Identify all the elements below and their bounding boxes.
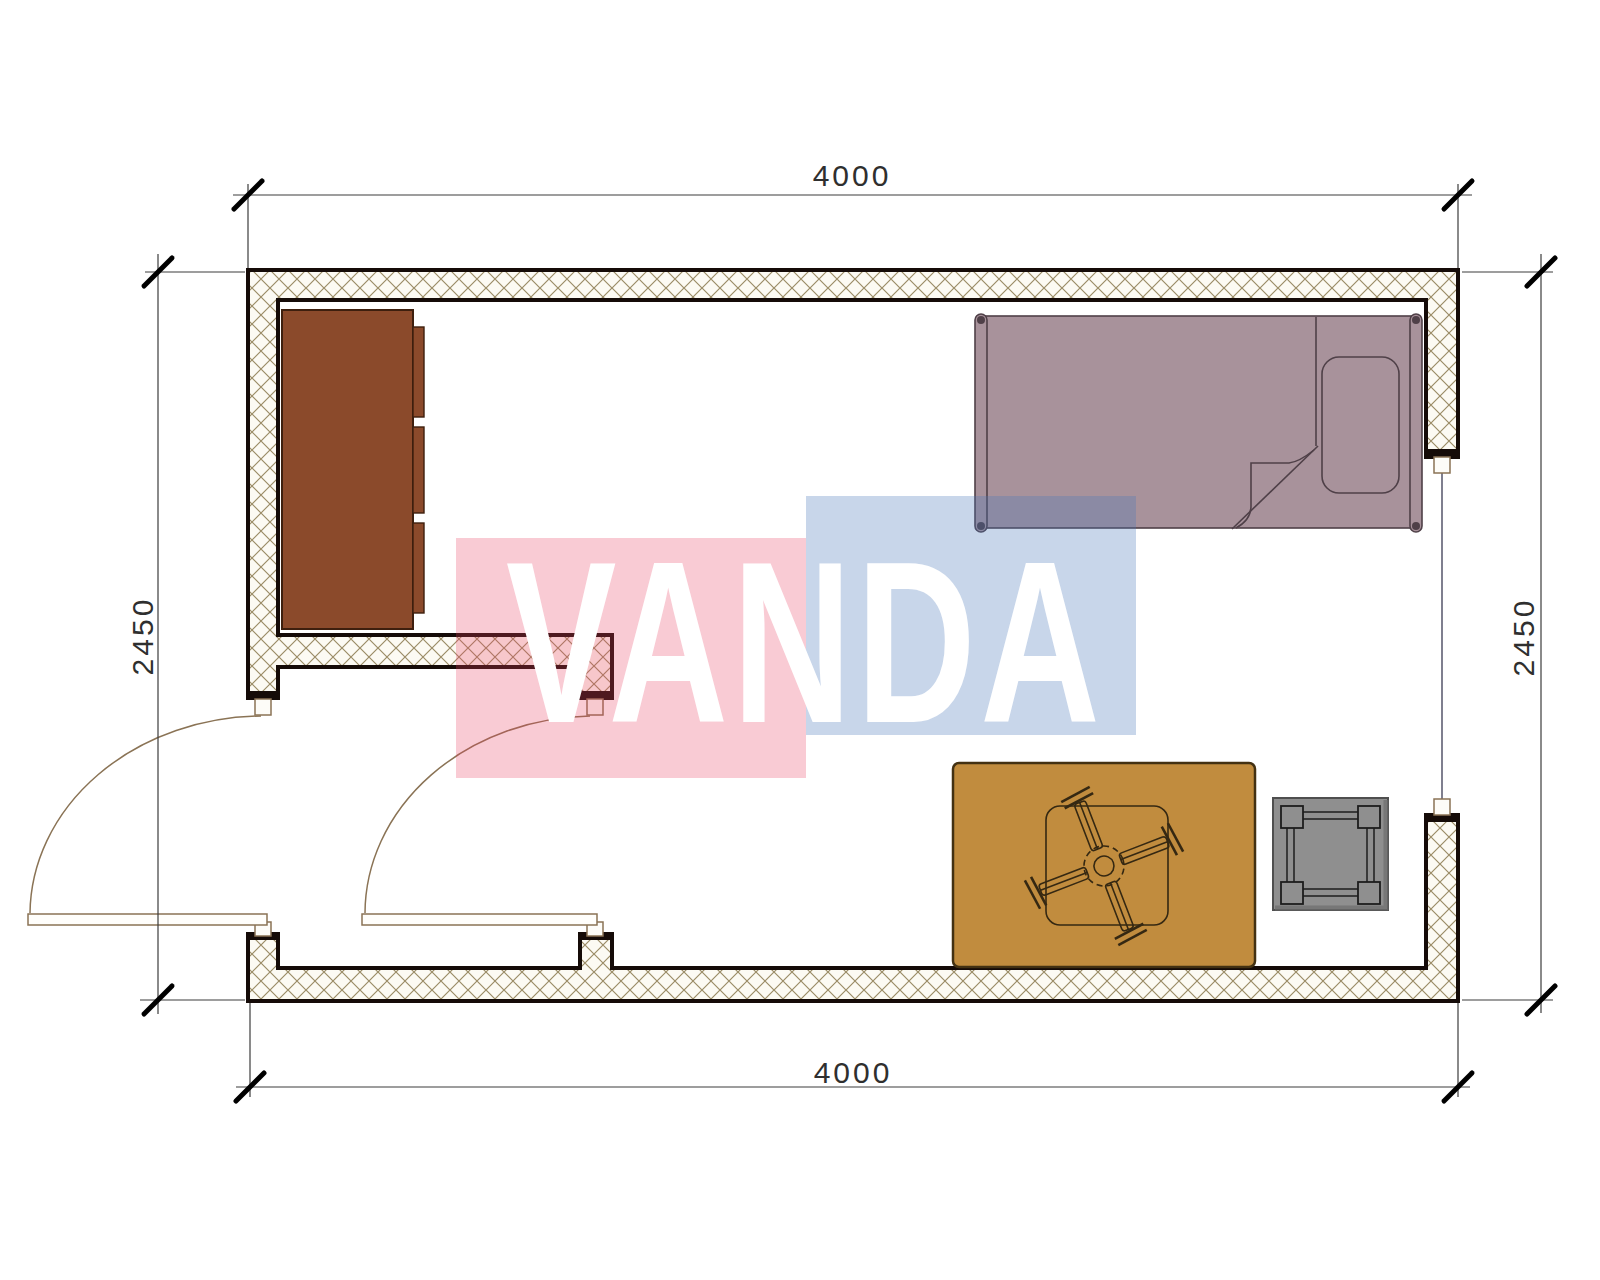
dimension-label-top: 4000 (813, 159, 892, 193)
watermark: VANDA (0, 0, 1600, 1280)
dimension-label-left: 2450 (126, 597, 160, 676)
floor-plan-canvas: VANDA 4000 4000 2450 2450 (0, 0, 1600, 1280)
dimension-label-bottom: 4000 (814, 1056, 893, 1090)
dimension-label-right: 2450 (1507, 598, 1541, 677)
watermark-text: VANDA (506, 514, 1104, 770)
